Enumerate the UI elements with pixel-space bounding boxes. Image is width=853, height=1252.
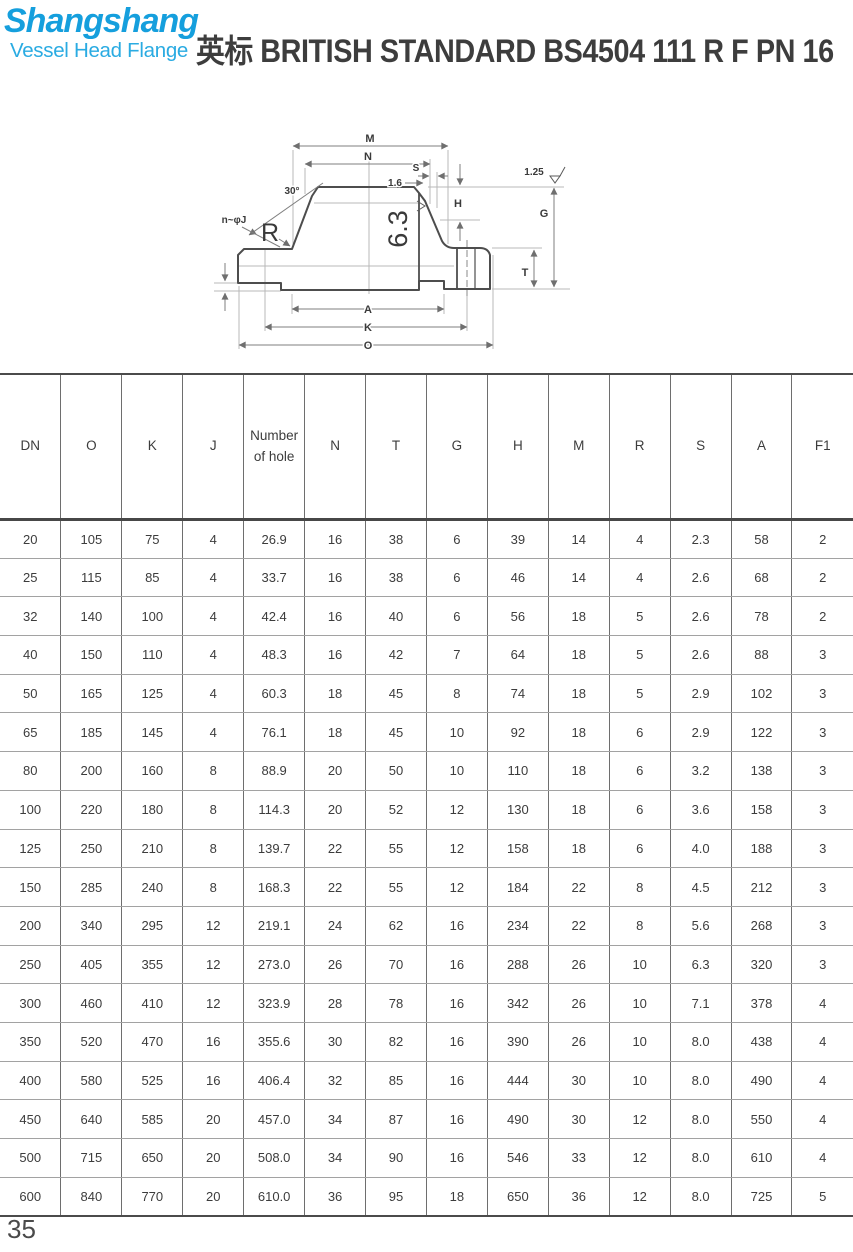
table-cell: 12 <box>609 1139 670 1178</box>
table-cell: 56 <box>487 597 548 636</box>
table-cell: 6 <box>426 558 487 597</box>
table-cell: 220 <box>61 790 122 829</box>
table-cell: 85 <box>366 1061 427 1100</box>
table-cell: 36 <box>305 1177 366 1216</box>
table-cell: 7.1 <box>670 984 731 1023</box>
table-cell: 600 <box>0 1177 61 1216</box>
table-cell: 490 <box>731 1061 792 1100</box>
table-cell: 550 <box>731 1100 792 1139</box>
table-cell: 525 <box>122 1061 183 1100</box>
table-row: 1002201808114.32052121301863.61583 <box>0 790 853 829</box>
table-cell: 42 <box>366 636 427 675</box>
table-row: 40150110448.316427641852.6883 <box>0 636 853 675</box>
table-cell: 8.0 <box>670 1177 731 1216</box>
table-cell: 4 <box>183 520 244 559</box>
table-row: 25040535512273.026701628826106.33203 <box>0 945 853 984</box>
table-cell: 520 <box>61 1022 122 1061</box>
table-cell: 45 <box>366 674 427 713</box>
table-cell: 200 <box>0 906 61 945</box>
table-cell: 3 <box>792 790 853 829</box>
table-cell: 80 <box>0 752 61 791</box>
spec-table-head: DNOKJNumber of holeNTGHMRSAF1 <box>0 374 853 520</box>
table-cell: 48.3 <box>244 636 305 675</box>
table-cell: 10 <box>426 752 487 791</box>
table-cell: 770 <box>122 1177 183 1216</box>
table-cell: 18 <box>548 829 609 868</box>
column-header-dn: DN <box>0 374 61 520</box>
table-cell: 185 <box>61 713 122 752</box>
table-cell: 610 <box>731 1139 792 1178</box>
table-cell: 16 <box>426 1022 487 1061</box>
table-cell: 114.3 <box>244 790 305 829</box>
table-cell: 12 <box>183 984 244 1023</box>
table-cell: 2.6 <box>670 597 731 636</box>
column-header-r: R <box>609 374 670 520</box>
table-cell: 138 <box>731 752 792 791</box>
table-cell: 55 <box>366 829 427 868</box>
table-cell: 650 <box>487 1177 548 1216</box>
table-cell: 6 <box>609 713 670 752</box>
table-cell: 145 <box>122 713 183 752</box>
table-cell: 2.9 <box>670 713 731 752</box>
table-cell: 8.0 <box>670 1139 731 1178</box>
table-cell: 3.6 <box>670 790 731 829</box>
table-cell: 26 <box>548 984 609 1023</box>
dim-label-s-offset: 1.6 <box>388 178 402 189</box>
table-cell: 50 <box>366 752 427 791</box>
table-cell: 10 <box>609 945 670 984</box>
column-header-t: T <box>366 374 427 520</box>
table-cell: 46 <box>487 558 548 597</box>
dim-label-n: N <box>364 151 372 163</box>
table-cell: 12 <box>426 829 487 868</box>
table-cell: 6 <box>426 520 487 559</box>
table-cell: 210 <box>122 829 183 868</box>
finish-triangle-icon <box>550 176 560 183</box>
table-cell: 3 <box>792 752 853 791</box>
table-cell: 4 <box>792 1061 853 1100</box>
table-cell: 20 <box>183 1139 244 1178</box>
table-cell: 355 <box>122 945 183 984</box>
table-cell: 88 <box>731 636 792 675</box>
table-cell: 8.0 <box>670 1022 731 1061</box>
table-cell: 295 <box>122 906 183 945</box>
column-header-f1: F1 <box>792 374 853 520</box>
table-cell: 470 <box>122 1022 183 1061</box>
table-cell: 12 <box>426 790 487 829</box>
table-cell: 16 <box>426 945 487 984</box>
table-cell: 6 <box>426 597 487 636</box>
table-cell: 219.1 <box>244 906 305 945</box>
table-cell: 24 <box>305 906 366 945</box>
table-cell: 285 <box>61 868 122 907</box>
table-cell: 14 <box>548 558 609 597</box>
table-row: 1252502108139.72255121581864.01883 <box>0 829 853 868</box>
table-cell: 342 <box>487 984 548 1023</box>
column-header-o: O <box>61 374 122 520</box>
table-cell: 18 <box>548 674 609 713</box>
table-row: 32140100442.416406561852.6782 <box>0 597 853 636</box>
table-cell: 5.6 <box>670 906 731 945</box>
table-cell: 450 <box>0 1100 61 1139</box>
table-cell: 8 <box>609 906 670 945</box>
table-cell: 460 <box>61 984 122 1023</box>
table-cell: 320 <box>731 945 792 984</box>
table-cell: 18 <box>548 597 609 636</box>
table-cell: 28 <box>305 984 366 1023</box>
dim-label-a: A <box>364 304 372 316</box>
table-cell: 8 <box>609 868 670 907</box>
table-cell: 58 <box>731 520 792 559</box>
table-cell: 22 <box>548 906 609 945</box>
spec-table: DNOKJNumber of holeNTGHMRSAF1 2010575426… <box>0 373 853 1217</box>
table-cell: 18 <box>548 636 609 675</box>
table-cell: 250 <box>0 945 61 984</box>
header-row: DNOKJNumber of holeNTGHMRSAF1 <box>0 374 853 520</box>
table-cell: 2.9 <box>670 674 731 713</box>
table-cell: 3 <box>792 945 853 984</box>
table-cell: 10 <box>426 713 487 752</box>
dim-label-finish: 1.25 <box>524 167 544 178</box>
flange-cross-section-svg: M N S 1.6 H G T A K O 30° n~φJ R 6.3 1.2… <box>192 124 662 370</box>
table-cell: 52 <box>366 790 427 829</box>
table-cell: 234 <box>487 906 548 945</box>
table-cell: 4 <box>183 636 244 675</box>
dim-label-angle: 30° <box>284 186 299 197</box>
table-cell: 10 <box>609 1061 670 1100</box>
table-cell: 8 <box>426 674 487 713</box>
table-cell: 4 <box>792 1022 853 1061</box>
table-cell: 102 <box>731 674 792 713</box>
table-cell: 42.4 <box>244 597 305 636</box>
table-cell: 580 <box>61 1061 122 1100</box>
table-row: 30046041012323.928781634226107.13784 <box>0 984 853 1023</box>
table-cell: 45 <box>366 713 427 752</box>
table-cell: 4 <box>183 713 244 752</box>
column-header-g: G <box>426 374 487 520</box>
table-cell: 444 <box>487 1061 548 1100</box>
spec-table-body: 2010575426.916386391442.35822511585433.7… <box>0 520 853 1216</box>
table-cell: 840 <box>61 1177 122 1216</box>
table-cell: 2 <box>792 558 853 597</box>
table-row: 2511585433.716386461442.6682 <box>0 558 853 597</box>
table-cell: 8.0 <box>670 1100 731 1139</box>
table-cell: 18 <box>548 752 609 791</box>
table-row: 40058052516406.432851644430108.04904 <box>0 1061 853 1100</box>
table-cell: 650 <box>122 1139 183 1178</box>
table-cell: 250 <box>61 829 122 868</box>
table-cell: 508.0 <box>244 1139 305 1178</box>
table-cell: 70 <box>366 945 427 984</box>
table-cell: 340 <box>61 906 122 945</box>
table-cell: 110 <box>122 636 183 675</box>
table-cell: 268 <box>731 906 792 945</box>
table-cell: 18 <box>426 1177 487 1216</box>
table-cell: 3.2 <box>670 752 731 791</box>
table-row: 50165125460.318458741852.91023 <box>0 674 853 713</box>
table-cell: 490 <box>487 1100 548 1139</box>
brand-logo: Shangshang Vessel Head Flange <box>4 4 194 62</box>
table-cell: 16 <box>426 1100 487 1139</box>
table-cell: 115 <box>61 558 122 597</box>
table-cell: 410 <box>122 984 183 1023</box>
table-cell: 184 <box>487 868 548 907</box>
table-cell: 26.9 <box>244 520 305 559</box>
table-cell: 3 <box>792 636 853 675</box>
table-cell: 12 <box>426 868 487 907</box>
table-cell: 100 <box>122 597 183 636</box>
table-cell: 90 <box>366 1139 427 1178</box>
table-cell: 10 <box>609 1022 670 1061</box>
table-cell: 62 <box>366 906 427 945</box>
table-cell: 4 <box>183 597 244 636</box>
table-cell: 168.3 <box>244 868 305 907</box>
table-cell: 5 <box>609 636 670 675</box>
table-cell: 725 <box>731 1177 792 1216</box>
table-cell: 87 <box>366 1100 427 1139</box>
dim-label-h: H <box>454 198 462 210</box>
table-cell: 4 <box>183 558 244 597</box>
table-cell: 100 <box>0 790 61 829</box>
table-cell: 4 <box>609 520 670 559</box>
table-cell: 6.3 <box>670 945 731 984</box>
dim-label-k: K <box>364 322 372 334</box>
table-cell: 2.6 <box>670 636 731 675</box>
table-cell: 4 <box>609 558 670 597</box>
dimension-labels: M N S 1.6 H G T A K O 30° n~φJ R 6.3 1.2… <box>222 133 549 352</box>
table-cell: 2.6 <box>670 558 731 597</box>
table-cell: 65 <box>0 713 61 752</box>
table-cell: 323.9 <box>244 984 305 1023</box>
table-cell: 30 <box>305 1022 366 1061</box>
table-cell: 3 <box>792 906 853 945</box>
table-cell: 105 <box>61 520 122 559</box>
table-cell: 158 <box>487 829 548 868</box>
table-cell: 8 <box>183 790 244 829</box>
flange-drawing: M N S 1.6 H G T A K O 30° n~φJ R 6.3 1.2… <box>192 124 662 370</box>
table-cell: 25 <box>0 558 61 597</box>
page-title: 英标 BRITISH STANDARD BS4504 111 R F PN 16 <box>196 26 834 72</box>
table-row: 80200160888.92050101101863.21383 <box>0 752 853 791</box>
table-cell: 18 <box>548 713 609 752</box>
table-cell: 6 <box>609 790 670 829</box>
table-cell: 160 <box>122 752 183 791</box>
table-row: 2010575426.916386391442.3582 <box>0 520 853 559</box>
column-header-j: J <box>183 374 244 520</box>
table-cell: 50 <box>0 674 61 713</box>
table-cell: 26 <box>548 1022 609 1061</box>
table-cell: 158 <box>731 790 792 829</box>
table-cell: 22 <box>305 868 366 907</box>
table-cell: 88.9 <box>244 752 305 791</box>
table-cell: 355.6 <box>244 1022 305 1061</box>
table-cell: 300 <box>0 984 61 1023</box>
table-cell: 20 <box>183 1177 244 1216</box>
dim-label-s: S <box>413 163 420 174</box>
table-cell: 12 <box>609 1177 670 1216</box>
table-cell: 78 <box>366 984 427 1023</box>
dim-label-g: G <box>540 208 549 220</box>
table-cell: 165 <box>61 674 122 713</box>
page-number: 35 <box>7 1214 36 1245</box>
table-cell: 378 <box>731 984 792 1023</box>
table-cell: 36 <box>548 1177 609 1216</box>
table-cell: 3 <box>792 713 853 752</box>
table-cell: 26 <box>548 945 609 984</box>
dim-label-o: O <box>364 340 373 352</box>
table-cell: 14 <box>548 520 609 559</box>
table-row: 60084077020610.036951865036128.07255 <box>0 1177 853 1216</box>
table-cell: 33.7 <box>244 558 305 597</box>
table-cell: 16 <box>305 636 366 675</box>
table-cell: 22 <box>548 868 609 907</box>
table-cell: 68 <box>731 558 792 597</box>
table-cell: 78 <box>731 597 792 636</box>
table-cell: 7 <box>426 636 487 675</box>
table-cell: 585 <box>122 1100 183 1139</box>
table-cell: 16 <box>426 1139 487 1178</box>
table-cell: 40 <box>366 597 427 636</box>
table-cell: 405 <box>61 945 122 984</box>
column-header-m: M <box>548 374 609 520</box>
table-cell: 390 <box>487 1022 548 1061</box>
table-cell: 8 <box>183 868 244 907</box>
table-cell: 273.0 <box>244 945 305 984</box>
table-cell: 74 <box>487 674 548 713</box>
column-header-k: K <box>122 374 183 520</box>
table-cell: 20 <box>183 1100 244 1139</box>
table-row: 20034029512219.12462162342285.62683 <box>0 906 853 945</box>
table-cell: 500 <box>0 1139 61 1178</box>
table-cell: 4.5 <box>670 868 731 907</box>
table-cell: 34 <box>305 1100 366 1139</box>
table-cell: 212 <box>731 868 792 907</box>
table-cell: 122 <box>731 713 792 752</box>
table-cell: 39 <box>487 520 548 559</box>
table-cell: 610.0 <box>244 1177 305 1216</box>
table-cell: 150 <box>61 636 122 675</box>
table-cell: 38 <box>366 558 427 597</box>
table-cell: 60.3 <box>244 674 305 713</box>
table-cell: 2 <box>792 520 853 559</box>
column-header-n: N <box>305 374 366 520</box>
table-cell: 34 <box>305 1139 366 1178</box>
table-cell: 2.3 <box>670 520 731 559</box>
table-cell: 6 <box>609 829 670 868</box>
table-cell: 400 <box>0 1061 61 1100</box>
table-cell: 110 <box>487 752 548 791</box>
table-cell: 16 <box>183 1061 244 1100</box>
table-cell: 2 <box>792 597 853 636</box>
table-cell: 22 <box>305 829 366 868</box>
table-cell: 75 <box>122 520 183 559</box>
table-cell: 4 <box>792 984 853 1023</box>
table-row: 45064058520457.034871649030128.05504 <box>0 1100 853 1139</box>
table-cell: 64 <box>487 636 548 675</box>
dim-label-roughness: 6.3 <box>383 210 413 248</box>
column-header-number-of-hole: Number of hole <box>244 374 305 520</box>
table-cell: 12 <box>183 906 244 945</box>
table-cell: 32 <box>0 597 61 636</box>
table-cell: 457.0 <box>244 1100 305 1139</box>
table-cell: 6 <box>609 752 670 791</box>
dim-label-radius: R <box>261 219 279 247</box>
table-cell: 125 <box>0 829 61 868</box>
table-cell: 3 <box>792 829 853 868</box>
table-cell: 715 <box>61 1139 122 1178</box>
table-cell: 640 <box>61 1100 122 1139</box>
table-cell: 95 <box>366 1177 427 1216</box>
table-cell: 30 <box>548 1061 609 1100</box>
dim-label-m: M <box>365 133 374 145</box>
table-cell: 140 <box>61 597 122 636</box>
table-cell: 20 <box>0 520 61 559</box>
column-header-s: S <box>670 374 731 520</box>
table-cell: 125 <box>122 674 183 713</box>
table-cell: 139.7 <box>244 829 305 868</box>
table-cell: 20 <box>305 790 366 829</box>
table-row: 1502852408168.32255121842284.52123 <box>0 868 853 907</box>
table-cell: 4 <box>792 1139 853 1178</box>
column-header-h: H <box>487 374 548 520</box>
table-cell: 10 <box>609 984 670 1023</box>
table-cell: 18 <box>305 713 366 752</box>
table-cell: 26 <box>305 945 366 984</box>
table-cell: 3 <box>792 868 853 907</box>
table-row: 50071565020508.034901654633128.06104 <box>0 1139 853 1178</box>
table-cell: 16 <box>305 520 366 559</box>
brand-tagline: Vessel Head Flange <box>4 41 194 62</box>
table-cell: 16 <box>305 597 366 636</box>
table-cell: 18 <box>305 674 366 713</box>
table-cell: 5 <box>609 597 670 636</box>
table-cell: 288 <box>487 945 548 984</box>
table-cell: 16 <box>426 1061 487 1100</box>
table-cell: 92 <box>487 713 548 752</box>
table-cell: 150 <box>0 868 61 907</box>
table-cell: 8.0 <box>670 1061 731 1100</box>
table-cell: 438 <box>731 1022 792 1061</box>
table-cell: 4.0 <box>670 829 731 868</box>
table-cell: 16 <box>183 1022 244 1061</box>
dim-label-t: T <box>522 267 529 279</box>
table-cell: 16 <box>426 984 487 1023</box>
table-cell: 82 <box>366 1022 427 1061</box>
table-cell: 40 <box>0 636 61 675</box>
table-cell: 130 <box>487 790 548 829</box>
table-cell: 188 <box>731 829 792 868</box>
table-cell: 16 <box>305 558 366 597</box>
table-cell: 16 <box>426 906 487 945</box>
table-cell: 180 <box>122 790 183 829</box>
table-cell: 350 <box>0 1022 61 1061</box>
table-cell: 18 <box>548 790 609 829</box>
table-row: 35052047016355.630821639026108.04384 <box>0 1022 853 1061</box>
dim-label-bolt-holes: n~φJ <box>222 215 247 226</box>
table-cell: 38 <box>366 520 427 559</box>
table-cell: 4 <box>792 1100 853 1139</box>
table-cell: 3 <box>792 674 853 713</box>
table-cell: 12 <box>609 1100 670 1139</box>
table-cell: 5 <box>792 1177 853 1216</box>
table-cell: 30 <box>548 1100 609 1139</box>
table-cell: 240 <box>122 868 183 907</box>
table-cell: 32 <box>305 1061 366 1100</box>
table-cell: 8 <box>183 752 244 791</box>
table-cell: 546 <box>487 1139 548 1178</box>
table-cell: 8 <box>183 829 244 868</box>
table-cell: 76.1 <box>244 713 305 752</box>
